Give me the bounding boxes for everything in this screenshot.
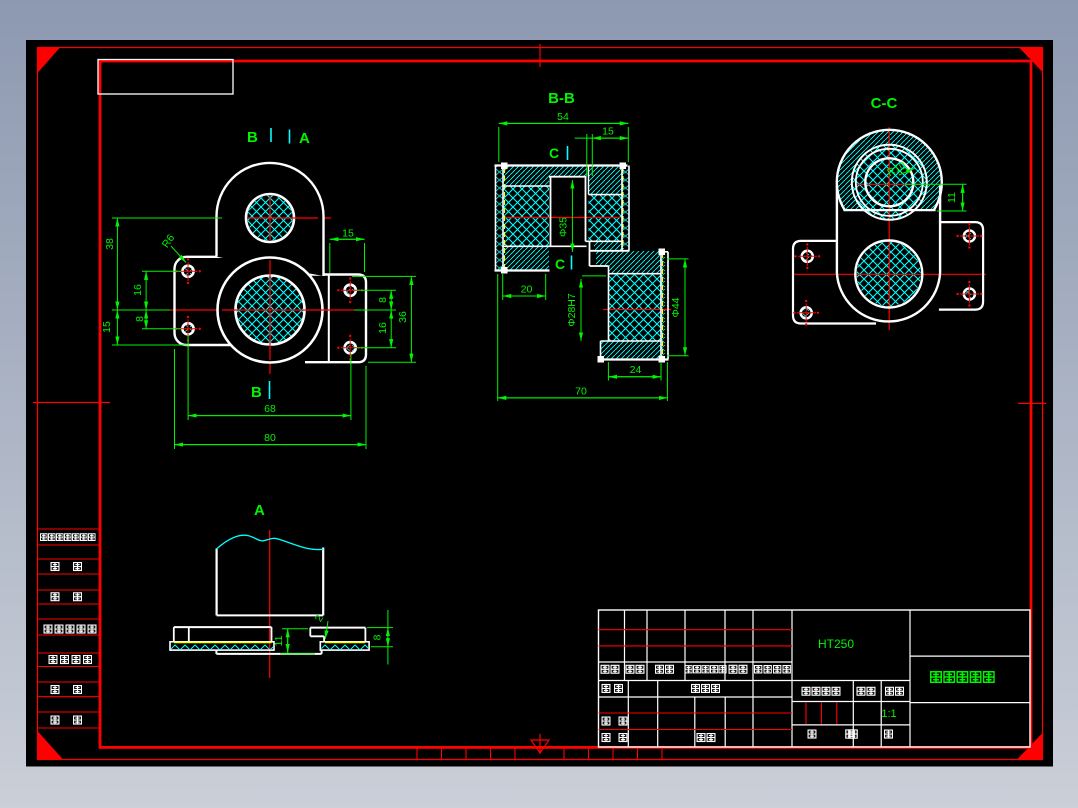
svg-text:Φ44: Φ44: [670, 297, 682, 317]
svg-text:36: 36: [397, 311, 409, 323]
svg-text:C: C: [549, 145, 559, 161]
svg-text:38: 38: [104, 238, 116, 250]
svg-text:Φ28H7: Φ28H7: [566, 293, 578, 327]
svg-text:54: 54: [557, 111, 569, 123]
svg-text:15: 15: [342, 228, 354, 240]
svg-text:Φ35: Φ35: [558, 217, 570, 237]
svg-text:20: 20: [521, 284, 533, 296]
svg-text:C-C: C-C: [871, 95, 898, 112]
svg-text:A: A: [254, 502, 265, 519]
svg-text:A: A: [299, 130, 310, 147]
svg-text:1:1: 1:1: [881, 708, 896, 720]
svg-text:16: 16: [377, 322, 389, 334]
svg-text:15: 15: [101, 321, 113, 333]
svg-text:11: 11: [273, 635, 285, 646]
svg-text:16: 16: [132, 284, 144, 296]
svg-text:HT250: HT250: [818, 637, 854, 651]
svg-text:B: B: [247, 129, 258, 146]
svg-text:24: 24: [630, 364, 642, 376]
svg-text:11: 11: [946, 192, 958, 203]
svg-text:68: 68: [264, 403, 276, 415]
svg-text:15: 15: [602, 126, 614, 138]
svg-text:B: B: [251, 384, 262, 401]
svg-text:80: 80: [264, 432, 276, 444]
svg-text:70: 70: [575, 386, 587, 398]
svg-text:8: 8: [134, 316, 146, 322]
svg-text:C: C: [555, 256, 565, 272]
svg-text:8: 8: [377, 297, 389, 303]
svg-text:8: 8: [372, 634, 384, 640]
svg-text:B-B: B-B: [548, 90, 575, 107]
